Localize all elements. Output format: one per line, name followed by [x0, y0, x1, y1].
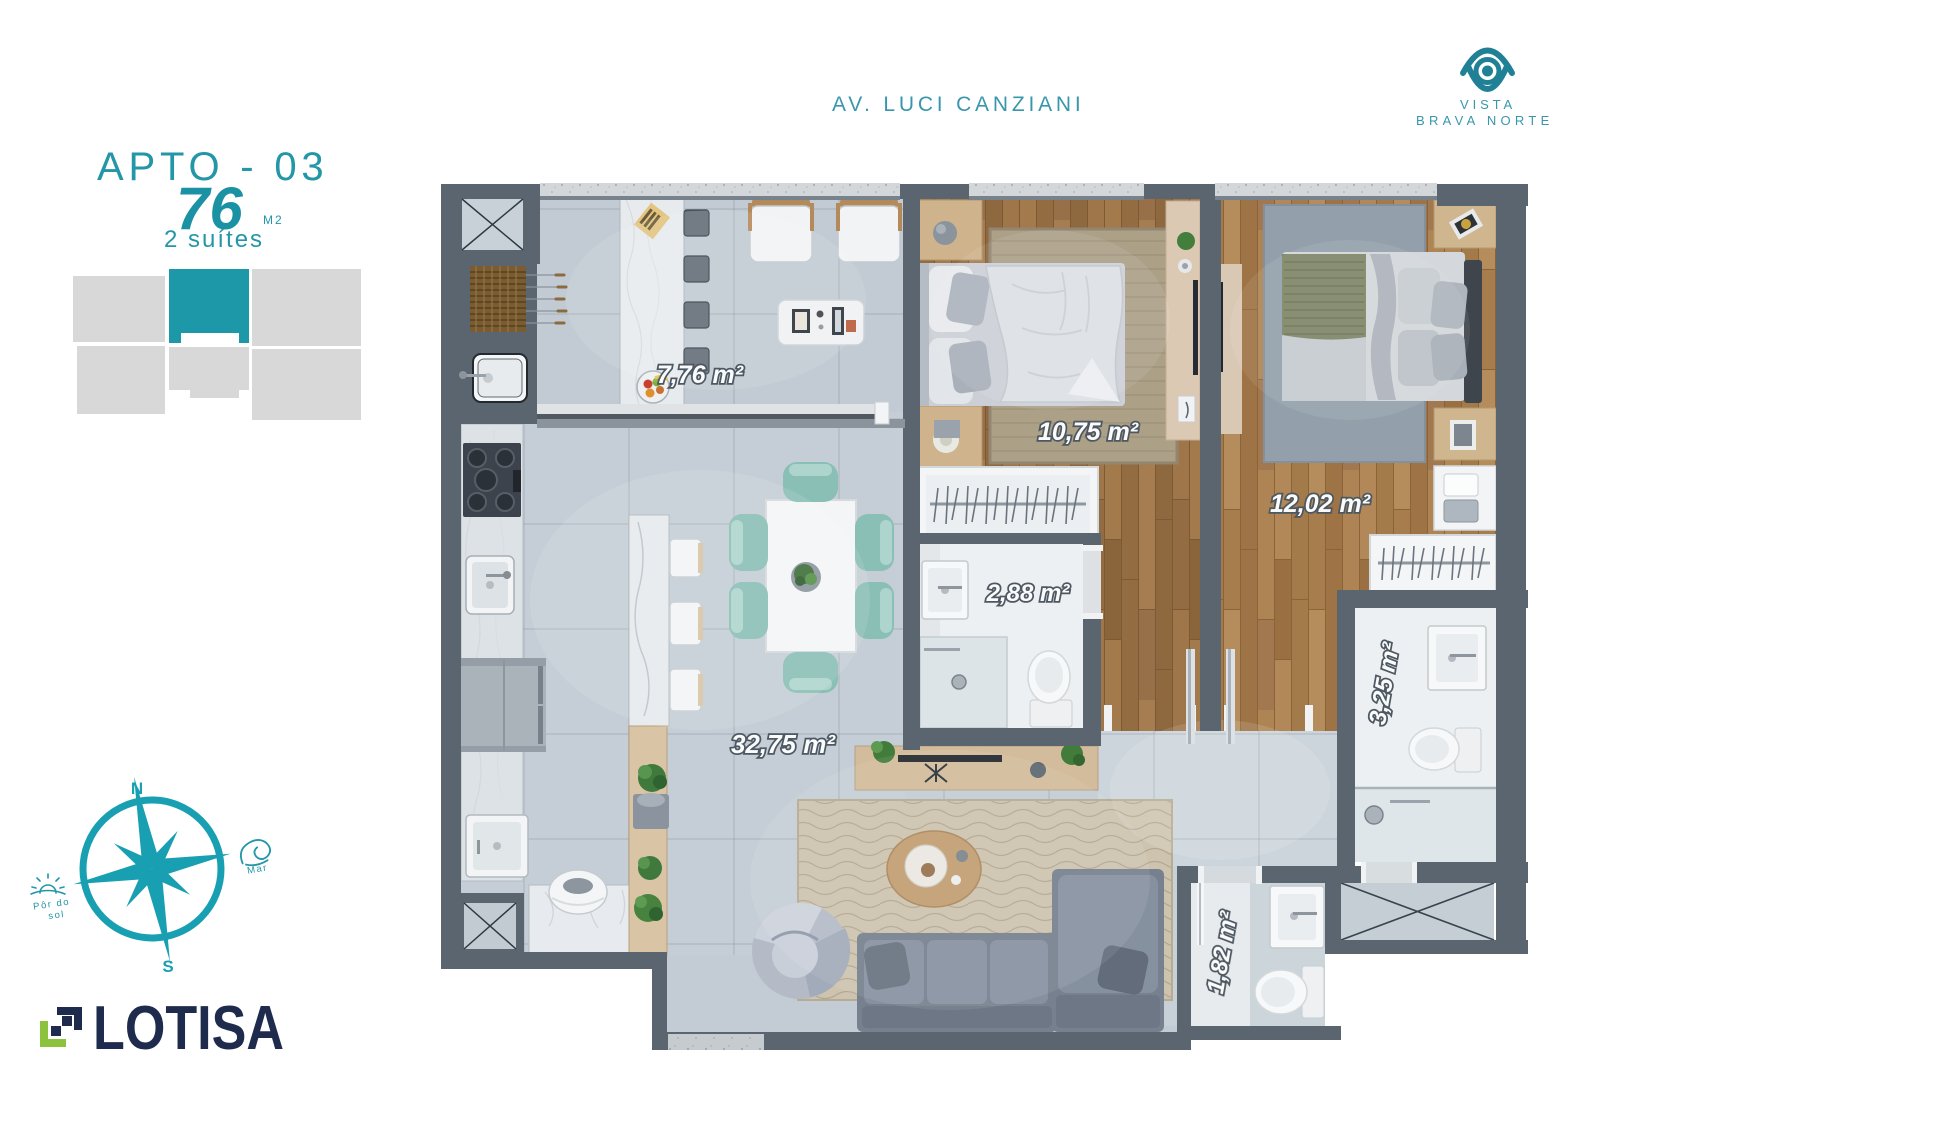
svg-text:BRAVA NORTE: BRAVA NORTE	[1416, 113, 1554, 128]
svg-text:S: S	[162, 957, 173, 976]
svg-text:sol: sol	[48, 909, 66, 922]
svg-text:N: N	[131, 779, 143, 798]
svg-text:7,76 m²: 7,76 m²	[657, 361, 744, 389]
svg-text:32,75 m²: 32,75 m²	[731, 729, 836, 759]
svg-text:2 suítes: 2 suítes	[164, 226, 264, 253]
svg-text:12,02 m²: 12,02 m²	[1270, 490, 1371, 518]
svg-text:AV. LUCI CANZIANI: AV. LUCI CANZIANI	[832, 93, 1084, 116]
svg-text:2,88 m²: 2,88 m²	[986, 580, 1071, 607]
svg-text:LOTISA: LOTISA	[93, 994, 284, 1063]
svg-text:10,75 m²: 10,75 m²	[1038, 418, 1139, 446]
svg-text:VISTA: VISTA	[1460, 97, 1516, 112]
svg-text:M2: M2	[263, 213, 284, 227]
